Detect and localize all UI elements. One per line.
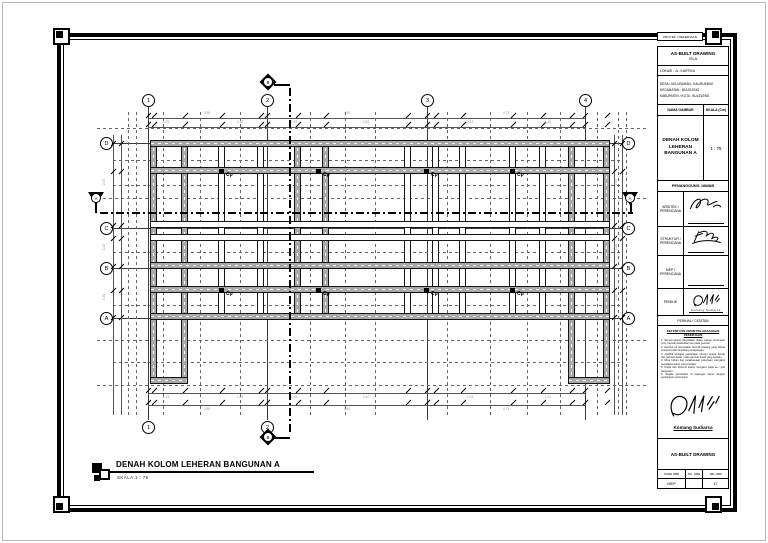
- number-header: NO. GBR: [686, 470, 703, 478]
- signatory-name: ·······················: [688, 281, 725, 286]
- owner-signature-icon: [688, 291, 724, 311]
- dimension-text: 3.58: [195, 407, 219, 411]
- centerline-vertical: [136, 112, 137, 416]
- count-value: 17: [703, 479, 728, 488]
- dimension-text: 2.55: [102, 170, 106, 194]
- notes-box: KETENTUAN UMUM PELAKSANAAN PEKERJAAN 1. …: [657, 325, 729, 439]
- dimension-text: 2.55: [614, 170, 618, 194]
- title-block: PROYEK / PEKERJAAN AS-BUILT DRAWING VILA…: [657, 32, 729, 489]
- beam-horizontal: [568, 377, 610, 384]
- structure-signature-icon: [687, 229, 725, 247]
- signatory-role: PEMILIK: [658, 289, 684, 315]
- grid-bubble-bottom: 1: [142, 421, 155, 434]
- dimension-text: 1.50: [102, 285, 106, 309]
- dimension-text: 4.80: [335, 407, 359, 411]
- drawing-name-value: DENAH KOLOM LEHERAN BANGUNAN A: [658, 116, 704, 180]
- centerline-horizontal: [97, 198, 648, 199]
- dimension-text: 1.13: [154, 395, 178, 399]
- signatory-row-architect: ARSITEK / PERENCANA ····················…: [657, 191, 729, 227]
- count-header: JML GBR: [703, 470, 728, 478]
- dimension-text: 1.13: [536, 395, 560, 399]
- dimension-text: 1.28: [536, 120, 560, 124]
- column-label: Cp: [226, 172, 233, 178]
- dimension-text: 1.05: [154, 120, 178, 124]
- beam-horizontal: [150, 377, 188, 384]
- signature-cell: ·······················: [684, 256, 728, 288]
- footer-title: AS-BUILT DRAWING: [657, 438, 729, 470]
- footer-value-row: MEP 17: [657, 478, 729, 489]
- dimension-text: 3.58: [195, 111, 219, 115]
- column-marker: [316, 169, 321, 174]
- grid-bubble-top: 3: [421, 94, 434, 107]
- dimension-line: [148, 127, 585, 128]
- column-label: Cp: [517, 172, 524, 178]
- section-marker-connector: [95, 203, 97, 213]
- section-cut-line-vertical: [289, 88, 291, 432]
- dimension-line: [148, 118, 585, 119]
- dimension-text: 2.48: [282, 395, 306, 399]
- centerline-vertical: [128, 112, 129, 416]
- address-box: DESA / KELURAHAN : KALIBUKBUK KECAMATAN …: [657, 75, 729, 105]
- column-marker: [510, 169, 515, 174]
- dimension-text: 4.80: [335, 111, 359, 115]
- dimension-text: 1.20: [102, 235, 106, 259]
- dimension-text: 2.33: [458, 120, 482, 124]
- grid-line-vertical: [148, 106, 149, 420]
- beam-horizontal: [150, 221, 610, 228]
- dimension-tick: [605, 400, 611, 406]
- section-marker-connector: [630, 203, 632, 213]
- centerline-horizontal: [97, 128, 648, 129]
- notes-title: KETENTUAN UMUM PELAKSANAAN PEKERJAAN: [661, 329, 725, 337]
- section-cut-line-horizontal: [100, 212, 633, 214]
- project-name-box: AS-BUILT DRAWING VILA: [657, 46, 729, 66]
- dimension-text: 1.50: [614, 285, 618, 309]
- signature-cell: ·······················: [684, 227, 728, 255]
- owner-subtitle: ····················: [658, 432, 728, 435]
- centerline-horizontal: [113, 362, 622, 363]
- signatory-role: STRUKTUR / PERENCANA: [658, 227, 684, 255]
- drawing-name-header: NAMA GAMBAR: [658, 105, 704, 115]
- signatory-name: ·······················: [688, 248, 725, 253]
- village-row: DESA / KELURAHAN : KALIBUKBUK: [660, 82, 728, 86]
- project-name: AS-BUILT DRAWING: [671, 51, 716, 56]
- dimension-line: [148, 405, 585, 406]
- dimension-text: 4.73: [494, 111, 518, 115]
- drawing-sheet-page: 123412DDCCBBAABBAACpCpCpCpCpCpCpCp3.584.…: [0, 0, 768, 543]
- column-marker: [424, 288, 429, 293]
- signatory-row-mep: MEP / PERENCANA ·······················: [657, 255, 729, 289]
- centerline-vertical: [618, 112, 619, 416]
- dimension-line: [148, 393, 585, 394]
- signatory-row-structure: STRUKTUR / PERENCANA ···················…: [657, 226, 729, 256]
- note-line: 6. Segala perubahan di lapangan harus de…: [661, 373, 725, 380]
- dimension-text: 1.05: [228, 395, 252, 399]
- dimension-text: 0.83: [354, 120, 378, 124]
- dimension-tick: [605, 122, 611, 128]
- project-header-tab: PROYEK / PEKERJAAN: [657, 32, 703, 41]
- grid-bubble-top: 4: [579, 94, 592, 107]
- owner-large-signature-icon: [661, 388, 725, 426]
- dimension-tick: [605, 388, 611, 394]
- scale-value: 1 : 75: [704, 116, 728, 180]
- marker-square-icon: [94, 475, 100, 481]
- column-marker: [316, 288, 321, 293]
- signatory-role: ARSITEK / PERENCANA: [658, 192, 684, 226]
- dimension-text: 1.18: [228, 120, 252, 124]
- dimension-text: 1.20: [614, 235, 618, 259]
- dimension-tick: [605, 113, 611, 119]
- dimension-text: 2.40: [354, 395, 378, 399]
- column-label: Cp: [323, 172, 330, 178]
- column-marker: [510, 288, 515, 293]
- note-line: 1. Semua ukuran dinyatakan dalam satuan …: [661, 339, 725, 346]
- architect-signature-icon: [687, 194, 725, 216]
- column-marker: [219, 169, 224, 174]
- dimension-text: 1.05: [458, 395, 482, 399]
- column-label: Cp: [323, 291, 330, 297]
- signatory-name: ·······················: [688, 219, 725, 224]
- number-value: [686, 479, 703, 488]
- notes-lines: 1. Semua ukuran dinyatakan dalam satuan …: [661, 339, 725, 380]
- grid-bubble-top: 1: [142, 94, 155, 107]
- code-header: KODE GBR: [658, 470, 686, 478]
- owner-name: Komang Sudiarsa: [658, 425, 728, 430]
- beam-horizontal: [150, 262, 610, 269]
- section-marker-label: B: [263, 432, 273, 442]
- note-line: 2. Gambar ini merupakan as-built drawing…: [661, 346, 725, 353]
- beam-horizontal: [150, 140, 610, 147]
- section-marker-connector: [274, 437, 290, 439]
- dimension-text: 4.73: [494, 407, 518, 411]
- centerline-horizontal: [97, 385, 648, 386]
- scale-header: SKALA (Cm): [704, 105, 728, 115]
- section-marker-connector: [274, 84, 290, 86]
- dimension-line: [113, 135, 114, 415]
- drawing-title-marker-icon: [92, 461, 116, 485]
- regency-row: KABUPATEN / KOTA : BULELENG: [660, 94, 728, 98]
- drawing-scale-label: SKALA 1 : 75: [117, 475, 149, 480]
- centerline-horizontal: [97, 340, 648, 341]
- project-subname: VILA: [689, 57, 697, 61]
- signature-cell: Komang Sudiarsa: [684, 289, 728, 315]
- grid-bubble-right: D: [622, 137, 635, 150]
- column-label: Cp: [226, 291, 233, 297]
- dimension-line: [121, 135, 122, 415]
- drawing-name-row: DENAH KOLOM LEHERAN BANGUNAN A 1 : 75: [657, 115, 729, 181]
- drawing-title-underline: [108, 471, 314, 473]
- section-marker-label: B: [263, 77, 273, 87]
- column-label: Cp: [431, 291, 438, 297]
- beam-horizontal: [150, 234, 610, 241]
- code-value: MEP: [658, 479, 686, 488]
- signatory-role: MEP / PERENCANA: [658, 256, 684, 288]
- signature-cell: ·······················: [684, 192, 728, 226]
- beam-horizontal: [150, 313, 610, 320]
- section-marker-label: A: [91, 193, 101, 203]
- column-marker: [219, 288, 224, 293]
- dimension-line: [622, 135, 623, 415]
- dimension-text: 2.45: [282, 120, 306, 124]
- column-label: Cp: [431, 172, 438, 178]
- grid-bubble-top: 2: [261, 94, 274, 107]
- signatory-row-owner: PEMILIK Komang Sudiarsa: [657, 288, 729, 316]
- column-label: Cp: [517, 291, 524, 297]
- column-marker: [424, 169, 429, 174]
- section-marker-label: A: [625, 193, 635, 203]
- district-row: KECAMATAN : BULELENG: [660, 88, 728, 92]
- drawing-title: DENAH KOLOM LEHERAN BANGUNAN A: [116, 460, 280, 469]
